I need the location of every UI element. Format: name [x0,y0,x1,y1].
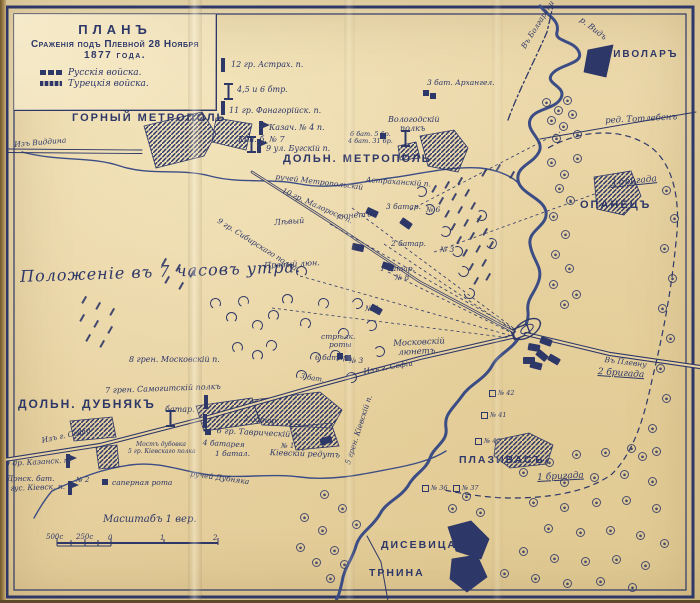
village-bivolar [584,45,613,77]
stream-dubnyak-tail [34,491,52,518]
legend: Русскія войска. Турецкія войска. [14,67,216,89]
scale-bar [57,538,218,546]
legend-row-russian: Русскія войска. [40,67,216,78]
road-metropol-southeast [252,172,514,332]
village-dolny-dubnyak [70,392,342,469]
plevna-battle-map: ГОРНЫЙ МЕТРОПОЛЬДОЛЬН. МЕТРОПОЛЬБИВОЛАРЪ… [0,0,700,603]
village-gorny-metropol [144,112,252,168]
road-trnina [367,536,388,601]
scale-label: Масштабъ 1 вер. [103,514,197,525]
turkish-troops-swatch [40,81,62,86]
legend-russian-label: Русскія войска. [68,68,142,78]
legend-turkish-label: Турецкія войска. [68,79,149,89]
road-to-bulgareni [508,6,553,120]
road-to-plevna [526,334,700,367]
map-title: ПЛАНЪ [14,22,216,37]
position-boundary-dashed [444,133,678,498]
russian-troops-swatch [40,70,62,75]
village-plazivas [494,433,553,468]
page-edge-left [0,0,6,603]
legend-row-turkish: Турецкія войска. [40,78,216,89]
road-from-vidin [8,149,142,154]
title-box: ПЛАНЪ Сраженія подъ Плевной 28 Ноября 18… [14,14,217,111]
village-disevitsa [448,521,489,592]
village-opanets [594,171,641,215]
road-totleben-redoubt [540,112,696,139]
map-subtitle: Сраженія подъ Плевной 28 Ноября [14,39,216,50]
map-year: 1877 года. [14,50,216,61]
village-dolny-metropol [398,130,468,172]
